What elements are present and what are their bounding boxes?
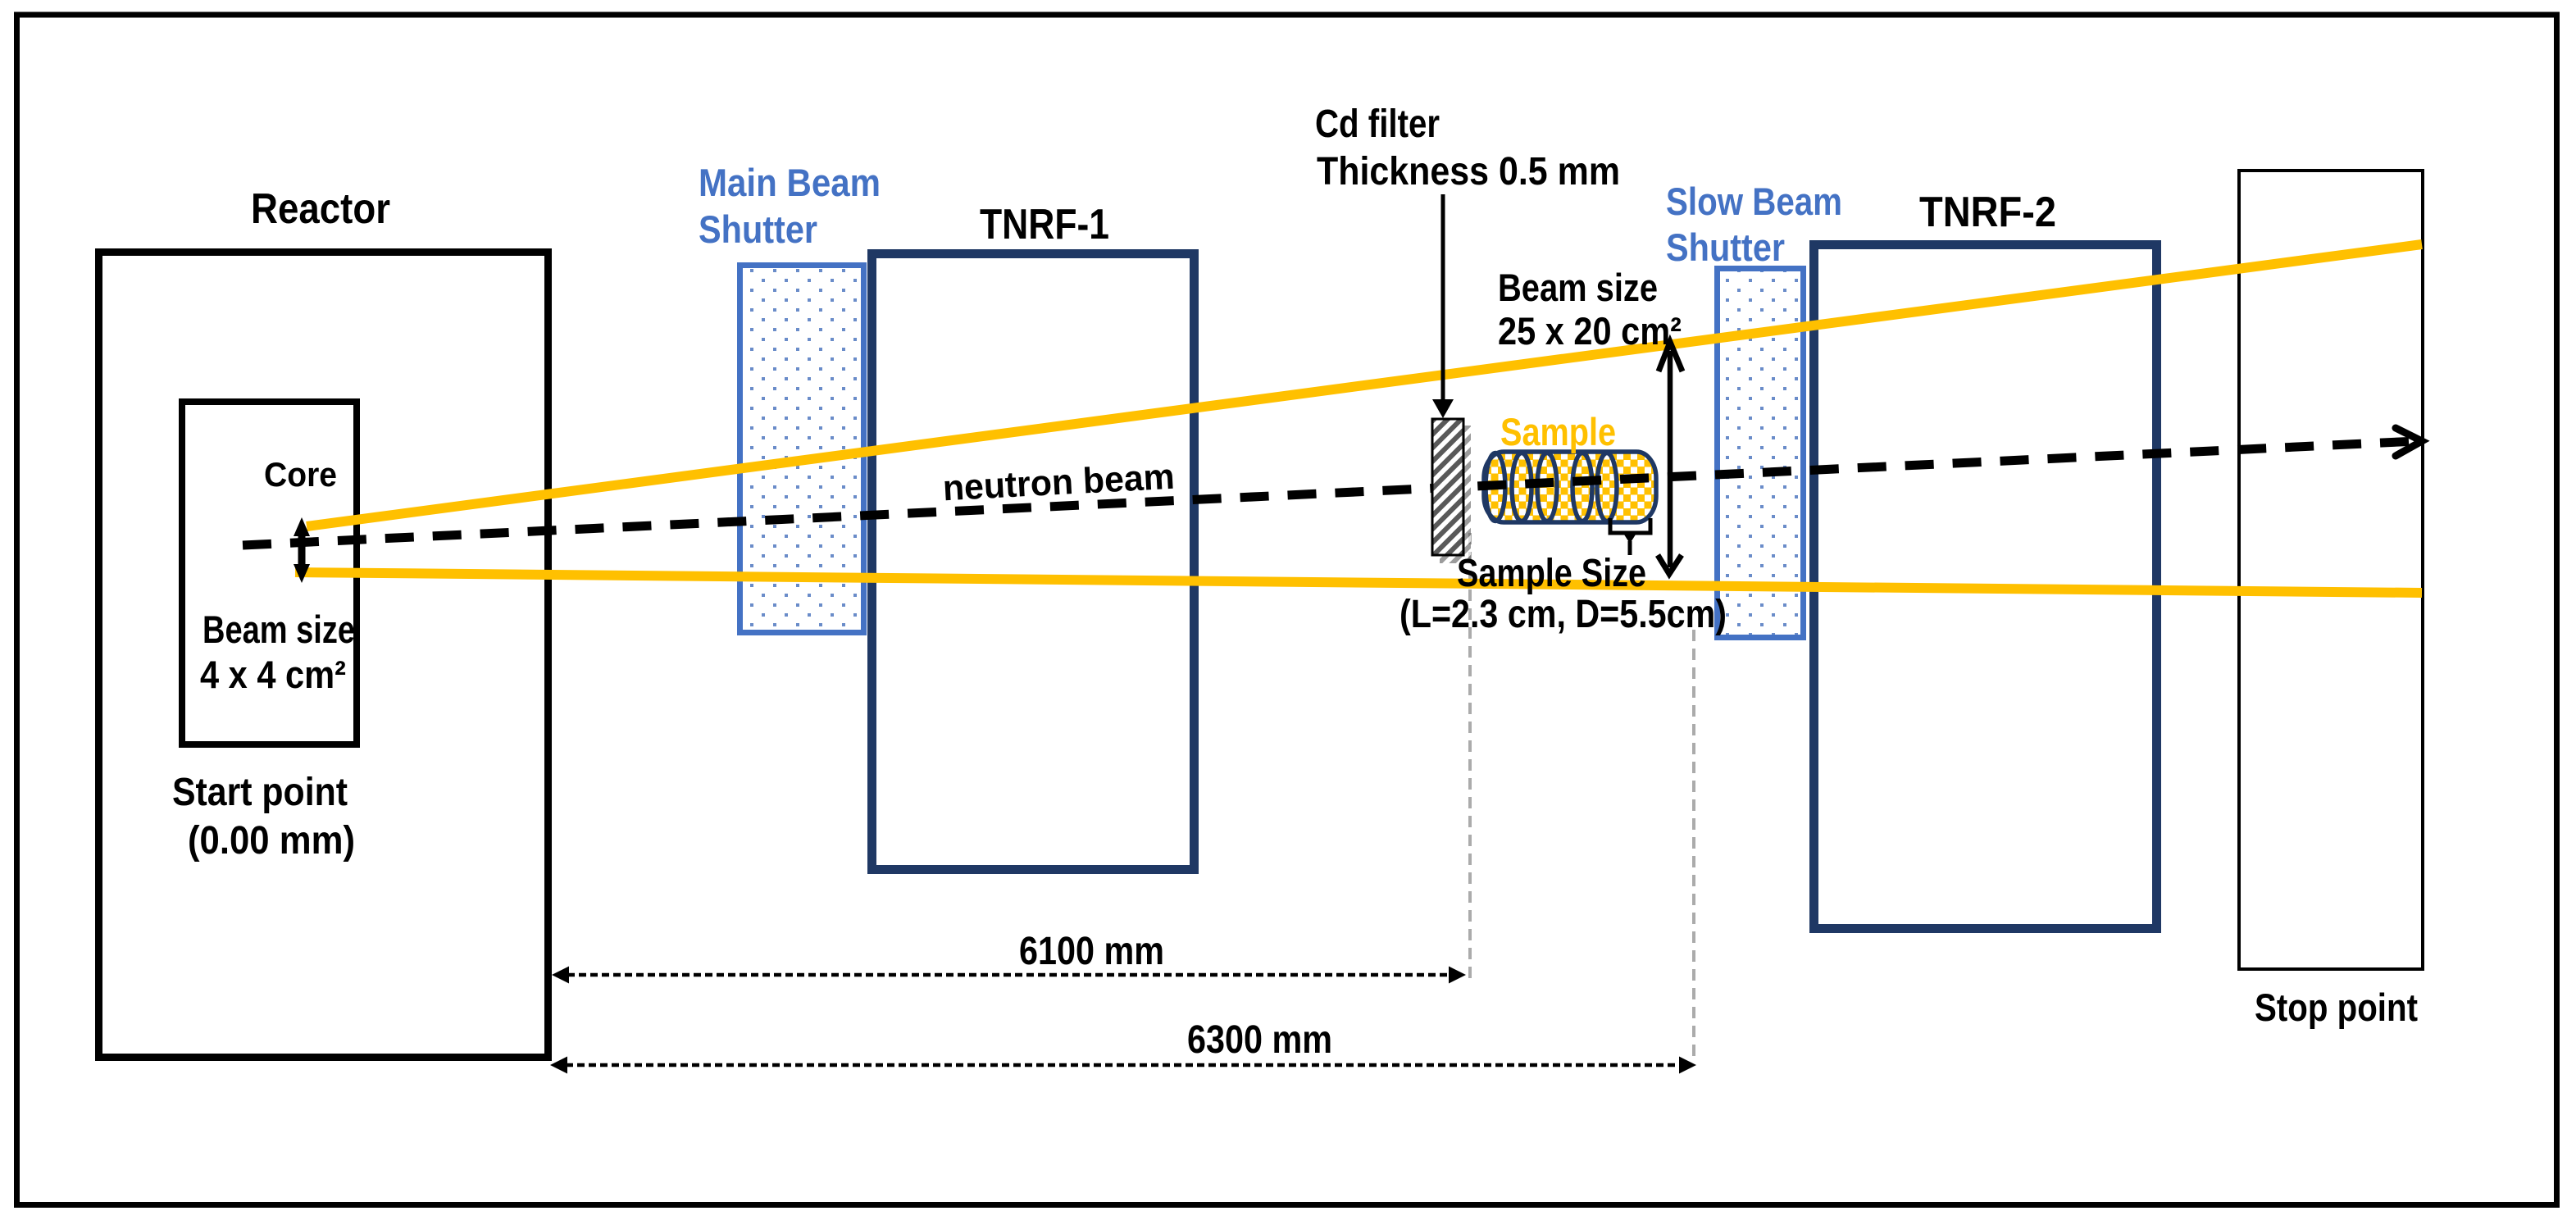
svg-text:Slow Beam: Slow Beam [1666,180,1842,223]
svg-text:Start point: Start point [172,771,348,814]
svg-text:6300 mm: 6300 mm [1187,1018,1332,1062]
svg-text:Main Beam: Main Beam [699,161,881,204]
svg-text:Sample: Sample [1500,410,1616,453]
svg-text:Beam size: Beam size [203,608,355,651]
svg-text:Sample Size: Sample Size [1457,552,1646,595]
svg-text:Reactor: Reactor [251,185,390,233]
svg-text:6100 mm: 6100 mm [1019,930,1164,973]
svg-text:Cd filter: Cd filter [1315,102,1440,146]
svg-text:(L=2.3 cm, D=5.5cm): (L=2.3 cm, D=5.5cm) [1400,593,1727,636]
svg-text:TNRF-1: TNRF-1 [980,201,1109,248]
svg-text:TNRF-2: TNRF-2 [1919,189,2056,236]
svg-text:Shutter: Shutter [1666,225,1785,269]
svg-text:Shutter: Shutter [699,207,817,251]
svg-text:(0.00 mm): (0.00 mm) [188,819,355,863]
svg-text:4 x 4 cm²: 4 x 4 cm² [200,653,346,696]
svg-text:Beam size: Beam size [1498,266,1658,309]
svg-text:Stop point: Stop point [2255,986,2418,1029]
svg-text:25 x 20 cm²: 25 x 20 cm² [1498,309,1682,353]
svg-text:Thickness 0.5 mm: Thickness 0.5 mm [1317,150,1620,193]
svg-text:Core: Core [264,455,337,494]
